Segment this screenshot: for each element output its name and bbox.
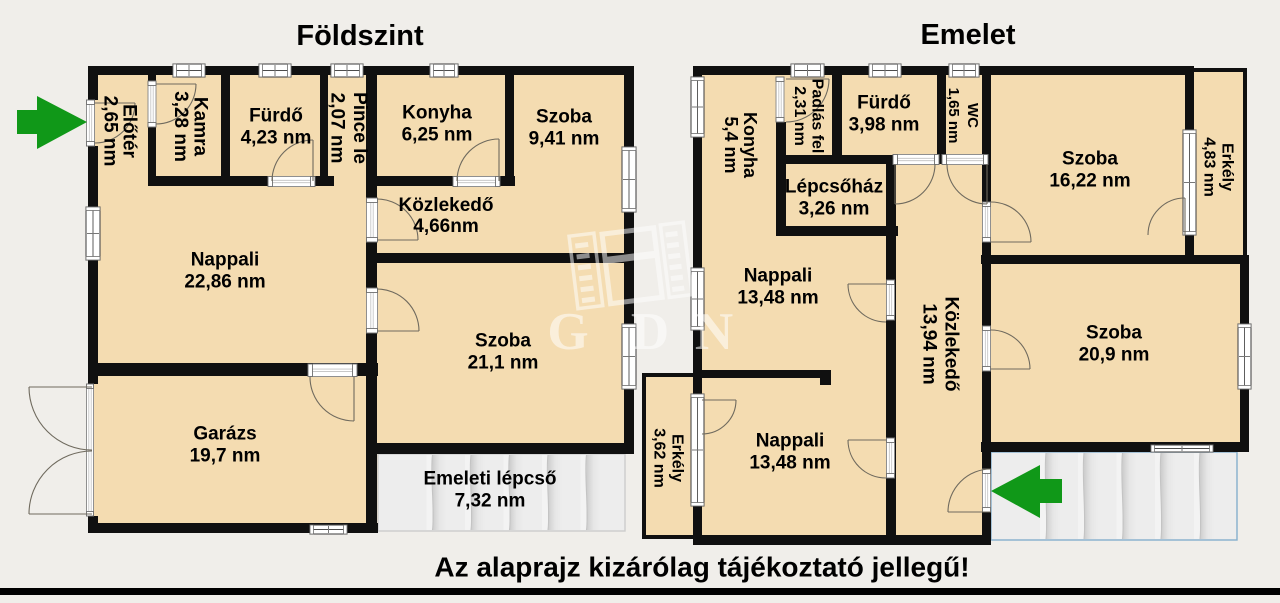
svg-text:Előtér2,65 nm: Előtér2,65 nm [100,96,140,167]
svg-text:3,98 nm: 3,98 nm [849,115,920,136]
svg-text:Földszint: Földszint [296,20,424,52]
svg-text:6,25 nm: 6,25 nm [402,125,473,146]
svg-text:Kamra3,28 nm: Kamra3,28 nm [170,91,211,162]
svg-text:13,48 nm: 13,48 nm [749,453,830,474]
svg-text:Szoba: Szoba [475,331,531,352]
svg-text:20,9 nm: 20,9 nm [1079,345,1150,366]
svg-text:7,32 nm: 7,32 nm [455,491,526,512]
svg-text:19,7 nm: 19,7 nm [190,446,261,467]
svg-text:Az alaprajz kizárólag tájékozt: Az alaprajz kizárólag tájékoztató jelleg… [434,552,969,583]
svg-text:G: G [547,303,588,361]
svg-text:D: D [631,303,669,361]
svg-text:Emelet: Emelet [920,19,1015,51]
svg-text:Közlekedő: Közlekedő [398,195,493,216]
svg-text:N: N [695,303,733,361]
svg-text:Konyha5,4 nm: Konyha5,4 nm [721,112,760,179]
svg-text:Nappali: Nappali [191,250,260,271]
svg-text:22,86 nm: 22,86 nm [184,272,265,293]
svg-text:Padlás fel2,31 nm: Padlás fel2,31 nm [791,79,826,154]
svg-text:Szoba: Szoba [536,107,592,128]
svg-text:4,66nm: 4,66nm [413,216,478,237]
svg-text:21,1 nm: 21,1 nm [468,353,539,374]
svg-text:Fürdő: Fürdő [249,106,303,127]
svg-text:Nappali: Nappali [744,266,813,287]
svg-text:Nappali: Nappali [756,431,825,452]
svg-text:Emeleti lépcső: Emeleti lépcső [423,469,556,490]
svg-text:Közlekedő13,94 nm: Közlekedő13,94 nm [919,296,962,391]
svg-text:Szoba: Szoba [1062,149,1118,170]
svg-text:Erkély4,83 nm: Erkély4,83 nm [1201,137,1236,197]
svg-text:Garázs: Garázs [193,424,256,445]
svg-text:Fürdő: Fürdő [857,93,911,114]
svg-text:Erkély3,62 nm: Erkély3,62 nm [651,428,686,488]
svg-text:9,41 nm: 9,41 nm [529,129,600,150]
svg-text:Pince le2,07 nm: Pince le2,07 nm [326,92,370,164]
svg-text:13,48 nm: 13,48 nm [737,288,818,309]
svg-text:Konyha: Konyha [402,103,472,124]
svg-text:16,22 nm: 16,22 nm [1049,171,1130,192]
svg-text:3,26 nm: 3,26 nm [799,199,870,220]
svg-text:4,23 nm: 4,23 nm [241,128,312,149]
svg-text:Szoba: Szoba [1086,323,1142,344]
svg-text:Lépcsőház: Lépcsőház [785,177,883,198]
